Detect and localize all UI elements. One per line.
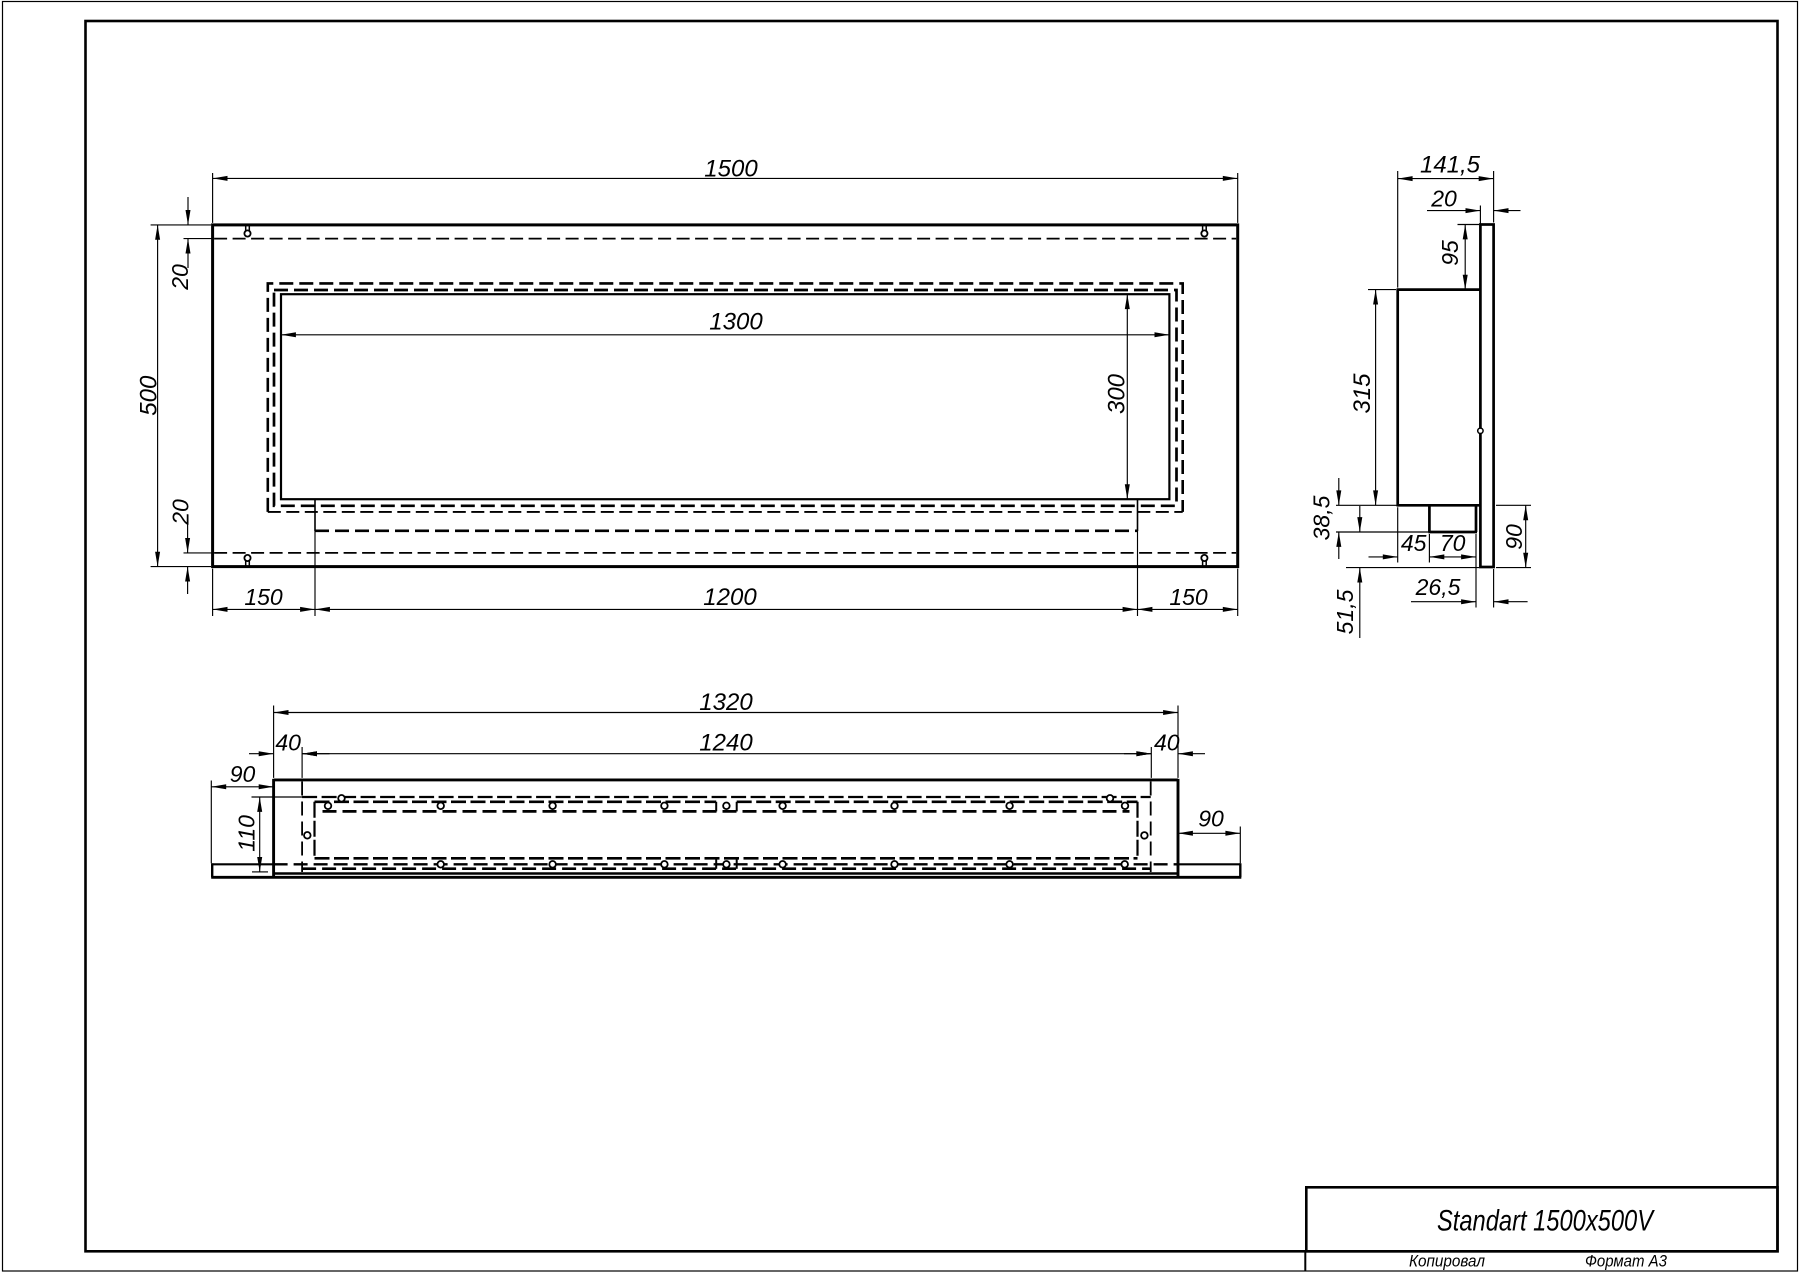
svg-text:38,5: 38,5: [1309, 495, 1335, 540]
svg-text:40: 40: [1154, 730, 1180, 756]
svg-text:141,5: 141,5: [1420, 152, 1481, 179]
svg-text:Формат А3: Формат А3: [1585, 1253, 1668, 1271]
svg-text:1240: 1240: [699, 730, 753, 757]
svg-text:20: 20: [1430, 186, 1457, 212]
svg-text:45: 45: [1401, 530, 1427, 556]
svg-text:300: 300: [1104, 373, 1131, 414]
svg-text:Standart 1500x500V: Standart 1500x500V: [1437, 1205, 1655, 1238]
svg-text:90: 90: [1501, 524, 1527, 550]
svg-text:20: 20: [168, 499, 194, 526]
svg-text:Копировал: Копировал: [1409, 1253, 1485, 1271]
svg-text:150: 150: [244, 584, 283, 610]
svg-text:26,5: 26,5: [1415, 574, 1461, 600]
svg-text:150: 150: [1169, 584, 1208, 610]
svg-text:20: 20: [167, 264, 193, 291]
svg-text:110: 110: [234, 815, 260, 852]
svg-text:1200: 1200: [703, 584, 757, 611]
svg-text:315: 315: [1349, 373, 1376, 414]
svg-text:90: 90: [1198, 806, 1224, 832]
svg-text:95: 95: [1437, 240, 1463, 266]
svg-text:40: 40: [275, 730, 301, 756]
svg-text:1320: 1320: [699, 689, 753, 716]
svg-text:51,5: 51,5: [1332, 589, 1358, 634]
svg-text:70: 70: [1440, 530, 1466, 556]
svg-text:500: 500: [136, 375, 163, 416]
svg-text:1500: 1500: [704, 156, 758, 183]
svg-text:90: 90: [230, 761, 256, 787]
svg-text:1300: 1300: [709, 309, 763, 336]
